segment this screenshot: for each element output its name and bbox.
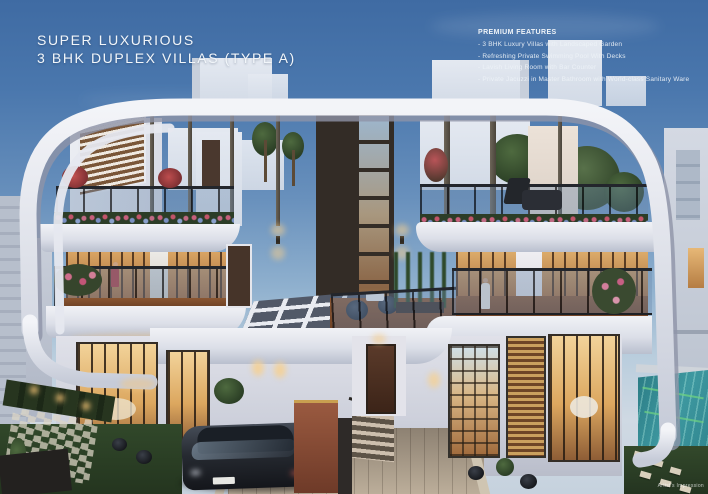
features-heading: PREMIUM FEATURES	[478, 29, 704, 36]
brochure-page: SUPER LUXURIOUS 3 BHK DUPLEX VILLAS (TYP…	[0, 0, 708, 494]
feature-item: - Lavish Living Room with Bar Counter	[478, 64, 704, 71]
ribbon-inner-band	[58, 128, 170, 330]
title-line-1: SUPER LUXURIOUS	[37, 31, 296, 49]
features-block: PREMIUM FEATURES - 3 BHK Luxury Villas w…	[478, 29, 704, 87]
feature-item: - Refreshing Private Swimming Pool With …	[478, 53, 704, 60]
ribbon-left-hook	[30, 322, 150, 382]
ribbon-shadow	[31, 112, 671, 441]
ribbon-foot-glow	[120, 378, 156, 390]
ribbon-right-foot	[640, 430, 668, 460]
artist-impression-credit: Artist's Impression	[658, 483, 704, 489]
title-block: SUPER LUXURIOUS 3 BHK DUPLEX VILLAS (TYP…	[37, 31, 296, 67]
feature-item: - Private Jacuzzi in Master Bathroom wit…	[478, 76, 704, 83]
title-line-2: 3 BHK DUPLEX VILLAS (TYPE A)	[37, 49, 296, 67]
feature-item: - 3 BHK Luxury Villas with Landscaped Ga…	[478, 41, 704, 48]
